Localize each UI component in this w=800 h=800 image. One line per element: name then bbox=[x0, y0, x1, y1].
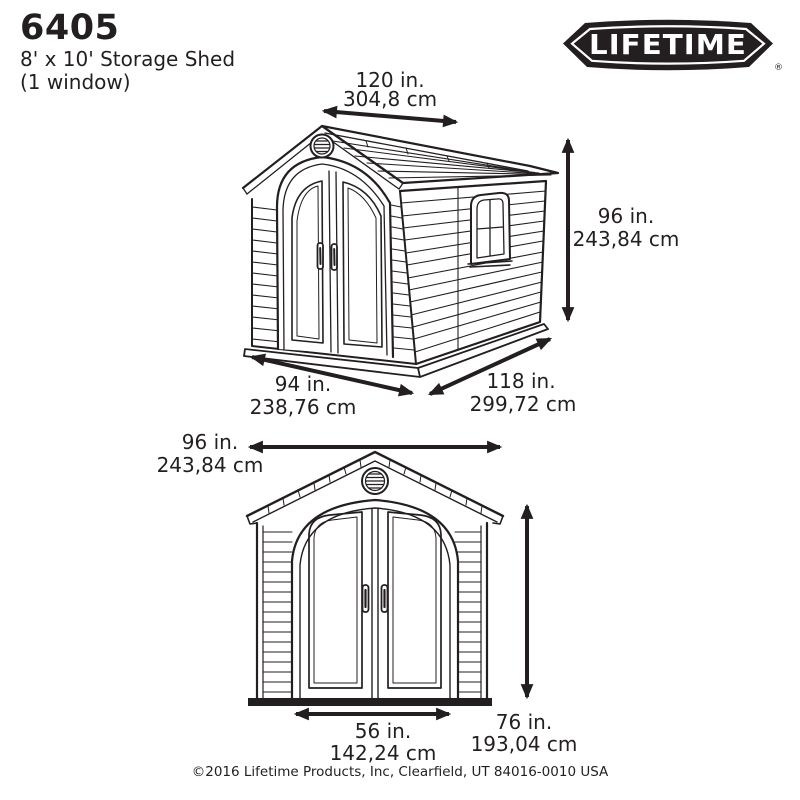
dim-depth-cm: 299,72 cm bbox=[470, 392, 577, 416]
floor-base bbox=[248, 698, 492, 706]
side-window bbox=[468, 193, 512, 267]
dim-door-height-cm: 193,04 cm bbox=[471, 732, 578, 756]
logo-wordmark: LIFETIME bbox=[589, 28, 747, 61]
shed-dimension-diagram: LIFETIME ® bbox=[0, 0, 800, 800]
dim-width-cm: 243,84 cm bbox=[157, 453, 264, 477]
front-gable-vent bbox=[362, 468, 388, 494]
copyright-text: ©2016 Lifetime Products, Inc, Clearfield… bbox=[0, 764, 800, 780]
dim-height-in: 96 in. bbox=[598, 204, 654, 228]
gable-vent bbox=[311, 135, 334, 158]
dim-depth-in: 118 in. bbox=[486, 369, 555, 393]
dim-width-in: 96 in. bbox=[182, 430, 238, 454]
dim-front-width-cm: 238,76 cm bbox=[250, 395, 357, 419]
dimension-arrow-roof-width bbox=[324, 111, 456, 122]
perspective-shed-drawing bbox=[243, 126, 558, 377]
double-doors bbox=[277, 157, 393, 357]
registered-trademark-symbol: ® bbox=[774, 63, 783, 73]
page-background: 6405 8' x 10' Storage Shed (1 window) LI… bbox=[0, 0, 800, 800]
dim-roof-width-cm: 304,8 cm bbox=[343, 87, 437, 111]
dim-door-width-in: 56 in. bbox=[355, 719, 411, 743]
front-shed-drawing bbox=[247, 452, 503, 706]
dim-height-cm: 243,84 cm bbox=[573, 227, 680, 251]
front-double-doors bbox=[292, 500, 458, 699]
dim-door-width-cm: 142,24 cm bbox=[330, 741, 437, 765]
dim-front-width-in: 94 in. bbox=[275, 372, 331, 396]
lifetime-logo: LIFETIME ® bbox=[563, 20, 783, 73]
dim-door-height-in: 76 in. bbox=[496, 710, 552, 734]
